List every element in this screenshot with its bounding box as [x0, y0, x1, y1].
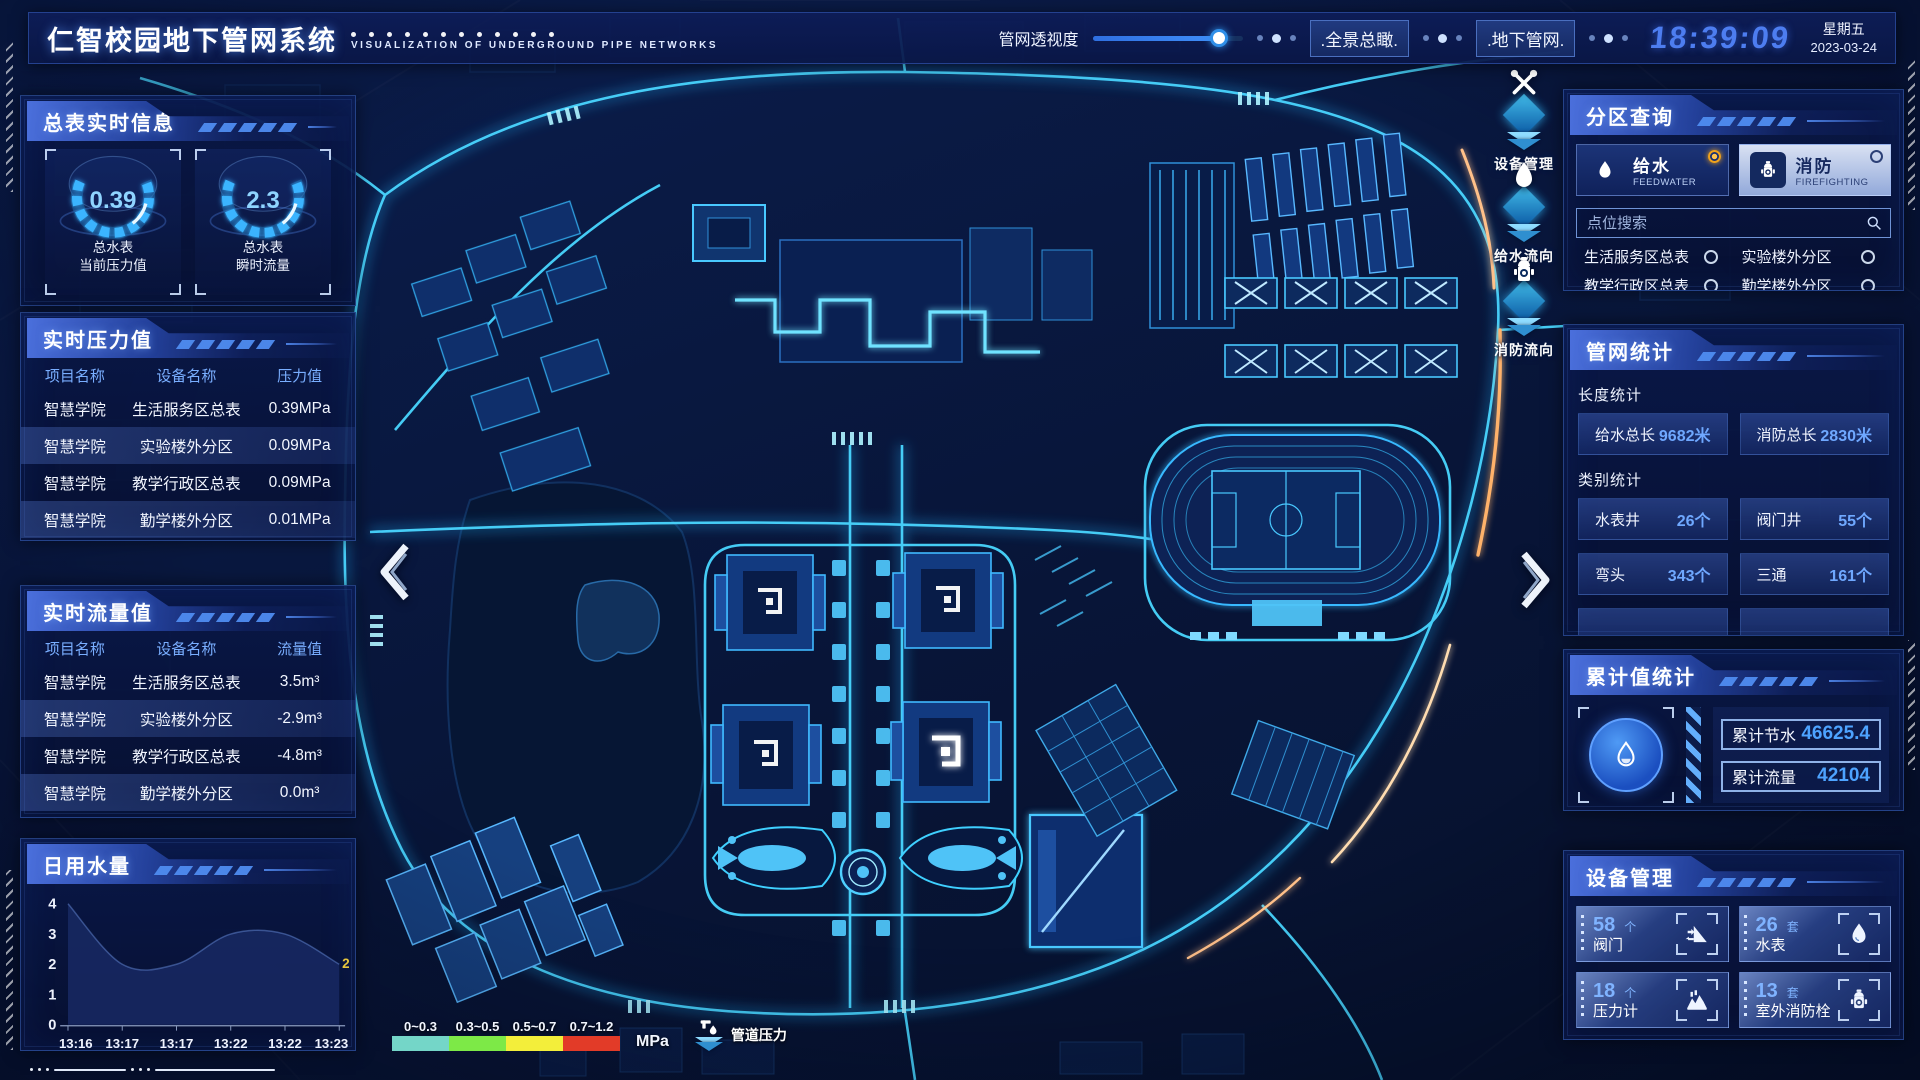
svg-text:13:22: 13:22 — [214, 1036, 248, 1051]
panel-title: 累计值统计 — [1570, 661, 1696, 690]
list-item[interactable]: 教学行政区总表 — [1576, 271, 1734, 291]
chevron-down-icon — [695, 1037, 723, 1051]
table-row[interactable]: 智慧学院实验楼外分区-2.9m³ — [21, 700, 355, 737]
radio-selected-icon[interactable] — [1708, 150, 1721, 163]
water-drop-icon — [1508, 160, 1540, 192]
table-row[interactable]: 智慧学院砺学楼外分区2.3m³ — [21, 811, 355, 818]
search-icon[interactable] — [1866, 215, 1882, 231]
panel-title: 实时压力值 — [27, 324, 153, 353]
panel-cumulative: 累计值统计 累计节水46625.4 累计流量42104 — [1563, 649, 1904, 811]
radio-unselected-icon[interactable] — [1870, 150, 1883, 163]
dot-separator — [1257, 34, 1296, 43]
pressure-legend: 0~0.30.3~0.5 0.5~0.70.7~1.2 MPa 管道压力 — [392, 1018, 787, 1051]
stat-total-flow: 累计流量42104 — [1721, 761, 1881, 792]
legend-segment — [563, 1036, 620, 1051]
underground-button[interactable]: .地下管网. — [1476, 20, 1575, 57]
legend-unit: MPa — [636, 1033, 669, 1051]
legend-segment — [449, 1036, 506, 1051]
gauge-pressure: 0.39 总水表当前压力值 — [45, 149, 181, 295]
wrench-icon — [1507, 66, 1541, 100]
panel-daily-usage: 日用水量 0123413:1613:1713:1713:2213:2213:23… — [20, 838, 356, 1051]
svg-text:13:22: 13:22 — [268, 1036, 302, 1051]
table-header: 项目名称设备名称压力值 — [21, 360, 355, 390]
chevron-down-icon — [1507, 318, 1541, 336]
panel-pressure-realtime: 实时压力值 项目名称设备名称压力值 智慧学院生活服务区总表0.39MPa 智慧学… — [20, 312, 356, 541]
panel-title: 管网统计 — [1570, 336, 1674, 365]
slider-thumb[interactable] — [1210, 29, 1228, 47]
diamond-base — [1503, 94, 1545, 136]
svg-text:13:17: 13:17 — [105, 1036, 139, 1051]
hatch-divider — [1686, 707, 1701, 803]
dot-separator — [1423, 34, 1462, 43]
stat-meter-wells: 水表井26个 — [1578, 498, 1728, 540]
daily-usage-chart: 0123413:1613:1713:1713:2213:2213:232 — [21, 884, 355, 1051]
courtyard-buildings — [711, 553, 1003, 805]
title-decor: VISUALIZATION OF UNDERGROUND PIPE NETWOR… — [351, 32, 718, 51]
header-bar: 仁智校园地下管网系统 VISUALIZATION OF UNDERGROUND … — [28, 12, 1896, 64]
list-item[interactable]: 实验楼外分区 — [1734, 242, 1892, 271]
tab-firefighting[interactable]: 消防FIREFIGHTING — [1739, 144, 1892, 196]
panel-title: 实时流量值 — [27, 597, 153, 626]
device-card-hydrants[interactable]: 13套 室外消防栓 — [1739, 972, 1892, 1028]
svg-text:0: 0 — [48, 1018, 56, 1034]
svg-text:13:23: 13:23 — [315, 1036, 349, 1051]
table-row[interactable]: 智慧学院生活服务区总表0.39MPa — [21, 390, 355, 427]
valve-icon — [1676, 913, 1718, 955]
fire-hydrant-icon — [1838, 979, 1880, 1021]
gauge-label: 总水表当前压力值 — [45, 239, 181, 275]
tab-feedwater[interactable]: 给水FEEDWATER — [1576, 144, 1729, 196]
stat-clipped — [1740, 608, 1890, 636]
panel-title: 分区查询 — [1570, 101, 1674, 130]
stat-valve-wells: 阀门井55个 — [1740, 498, 1890, 540]
page-title: 仁智校园地下管网系统 — [47, 19, 337, 58]
slash-decor — [1700, 117, 1793, 126]
stadium — [1150, 435, 1440, 640]
svg-text:13:16: 13:16 — [59, 1036, 93, 1051]
table-row[interactable]: 智慧学院砺学楼外分区0.09MPa — [21, 538, 355, 541]
section-label: 长度统计 — [1578, 384, 1889, 405]
legend-segment — [392, 1036, 449, 1051]
svg-text:2.3: 2.3 — [246, 187, 279, 214]
panel-title: 设备管理 — [1570, 862, 1674, 891]
table-row[interactable]: 智慧学院教学行政区总表0.09MPa — [21, 464, 355, 501]
panel-title: 日用水量 — [27, 850, 131, 879]
svg-text:0.39: 0.39 — [90, 187, 137, 214]
svg-text:4: 4 — [48, 897, 57, 913]
transparency-slider[interactable] — [1093, 36, 1243, 41]
table-row[interactable]: 智慧学院勤学楼外分区0.01MPa — [21, 501, 355, 538]
slash-decor — [201, 123, 294, 132]
pressure-gauge-icon — [1676, 979, 1718, 1021]
diamond-base — [1503, 186, 1545, 228]
section-label: 类别统计 — [1578, 469, 1889, 490]
pipe-pressure-label: 管道压力 — [731, 1025, 787, 1045]
radio-icon[interactable] — [1704, 250, 1718, 264]
search-input[interactable] — [1585, 214, 1866, 233]
slash-decor — [1700, 352, 1793, 361]
panel-title: 总表实时信息 — [27, 107, 175, 136]
svg-text:2: 2 — [342, 956, 349, 971]
edge-decor — [1908, 640, 1915, 770]
slash-decor — [157, 866, 250, 875]
radio-icon[interactable] — [1861, 279, 1875, 292]
gauge-label: 总水表瞬时流量 — [195, 239, 331, 275]
diamond-base — [1503, 280, 1545, 322]
table-row[interactable]: 智慧学院生活服务区总表3.5m³ — [21, 663, 355, 700]
dot-separator — [1589, 34, 1628, 43]
radio-icon[interactable] — [1704, 279, 1718, 292]
table-row[interactable]: 智慧学院教学行政区总表-4.8m³ — [21, 737, 355, 774]
panel-device-management: 设备管理 58个 阀门 26套 水表 18个 压力计 — [1563, 850, 1904, 1040]
bottom-left-decor — [30, 1068, 275, 1071]
svg-text:1: 1 — [48, 987, 56, 1003]
stat-feedwater-length: 给水总长9682米 — [1578, 413, 1728, 455]
point-search[interactable] — [1576, 208, 1891, 238]
list-item[interactable]: 勤学楼外分区 — [1734, 271, 1892, 291]
device-card-water-meters[interactable]: 26套 水表 — [1739, 906, 1892, 962]
svg-text:2: 2 — [48, 957, 56, 973]
water-meter-icon — [1838, 913, 1880, 955]
edge-decor — [6, 870, 13, 1050]
chevron-down-icon — [1507, 132, 1541, 150]
stat-water-saved: 累计节水46625.4 — [1721, 719, 1881, 750]
svg-text:3: 3 — [48, 927, 56, 943]
water-drop-icon — [1587, 152, 1623, 188]
fire-hydrant-icon — [1508, 254, 1540, 286]
gauge-dial: 0.39 — [45, 151, 181, 243]
list-item[interactable]: 生活服务区总表 — [1576, 242, 1734, 271]
fish-gardens — [713, 827, 1022, 894]
legend-color-bar — [392, 1036, 620, 1051]
date: 2023-03-24 — [1811, 39, 1878, 57]
zone-point-list: 生活服务区总表 实验楼外分区 教学行政区总表 勤学楼外分区 砺学楼外分区 宿舍区… — [1576, 242, 1891, 291]
panel-meter-realtime: 总表实时信息 0.39 总水表当前压力值 — [20, 95, 356, 306]
slash-decor — [1700, 878, 1793, 887]
prev-arrow-icon[interactable] — [372, 540, 414, 604]
page-subtitle: VISUALIZATION OF UNDERGROUND PIPE NETWOR… — [351, 40, 718, 51]
table-row[interactable]: 智慧学院勤学楼外分区0.0m³ — [21, 774, 355, 811]
table-header: 项目名称设备名称流量值 — [21, 633, 355, 663]
transparency-label: 管网透视度 — [998, 26, 1078, 50]
stat-elbows: 弯头343个 — [1578, 553, 1728, 595]
chevron-down-icon — [1507, 224, 1541, 242]
slash-decor — [1722, 677, 1815, 686]
slash-decor — [179, 613, 272, 622]
edge-decor — [6, 42, 13, 192]
legend-segment — [506, 1036, 563, 1051]
title-dots — [351, 32, 718, 37]
device-card-valves[interactable]: 58个 阀门 — [1576, 906, 1729, 962]
water-drop-icon — [1589, 718, 1663, 792]
svg-text:13:17: 13:17 — [160, 1036, 194, 1051]
overview-button[interactable]: .全景总瞰. — [1310, 20, 1409, 57]
cumulative-icon-frame — [1578, 707, 1674, 803]
next-arrow-icon[interactable] — [1516, 548, 1558, 612]
device-card-pressure-gauges[interactable]: 18个 压力计 — [1576, 972, 1729, 1028]
dashboard: 仁智校园地下管网系统 VISUALIZATION OF UNDERGROUND … — [0, 0, 1920, 1080]
edge-decor — [1908, 60, 1915, 210]
radio-icon[interactable] — [1861, 250, 1875, 264]
panel-zone-query: 分区查询 给水FEEDWATER 消防FIREFIGHTING 生活服务区总表 — [1563, 89, 1904, 291]
fire-hydrant-icon — [1750, 152, 1786, 188]
stat-fire-length: 消防总长2830米 — [1740, 413, 1890, 455]
gauge-dial: 2.3 — [195, 151, 331, 243]
panel-flow-realtime: 实时流量值 项目名称设备名称流量值 智慧学院生活服务区总表3.5m³ 智慧学院实… — [20, 585, 356, 818]
slash-decor — [179, 340, 272, 349]
clock: 18:39:09 — [1649, 20, 1793, 56]
weekday: 星期五 — [1823, 20, 1865, 39]
stat-tees: 三通161个 — [1740, 553, 1890, 595]
pipe-pressure-icon — [699, 1018, 719, 1036]
slider-fill — [1093, 36, 1219, 41]
stat-clipped — [1578, 608, 1728, 636]
table-row[interactable]: 智慧学院实验楼外分区0.09MPa — [21, 427, 355, 464]
gauge-flow: 2.3 总水表瞬时流量 — [195, 149, 331, 295]
panel-pipe-stats: 管网统计 长度统计 给水总长9682米 消防总长2830米 类别统计 水表井26… — [1563, 324, 1904, 636]
